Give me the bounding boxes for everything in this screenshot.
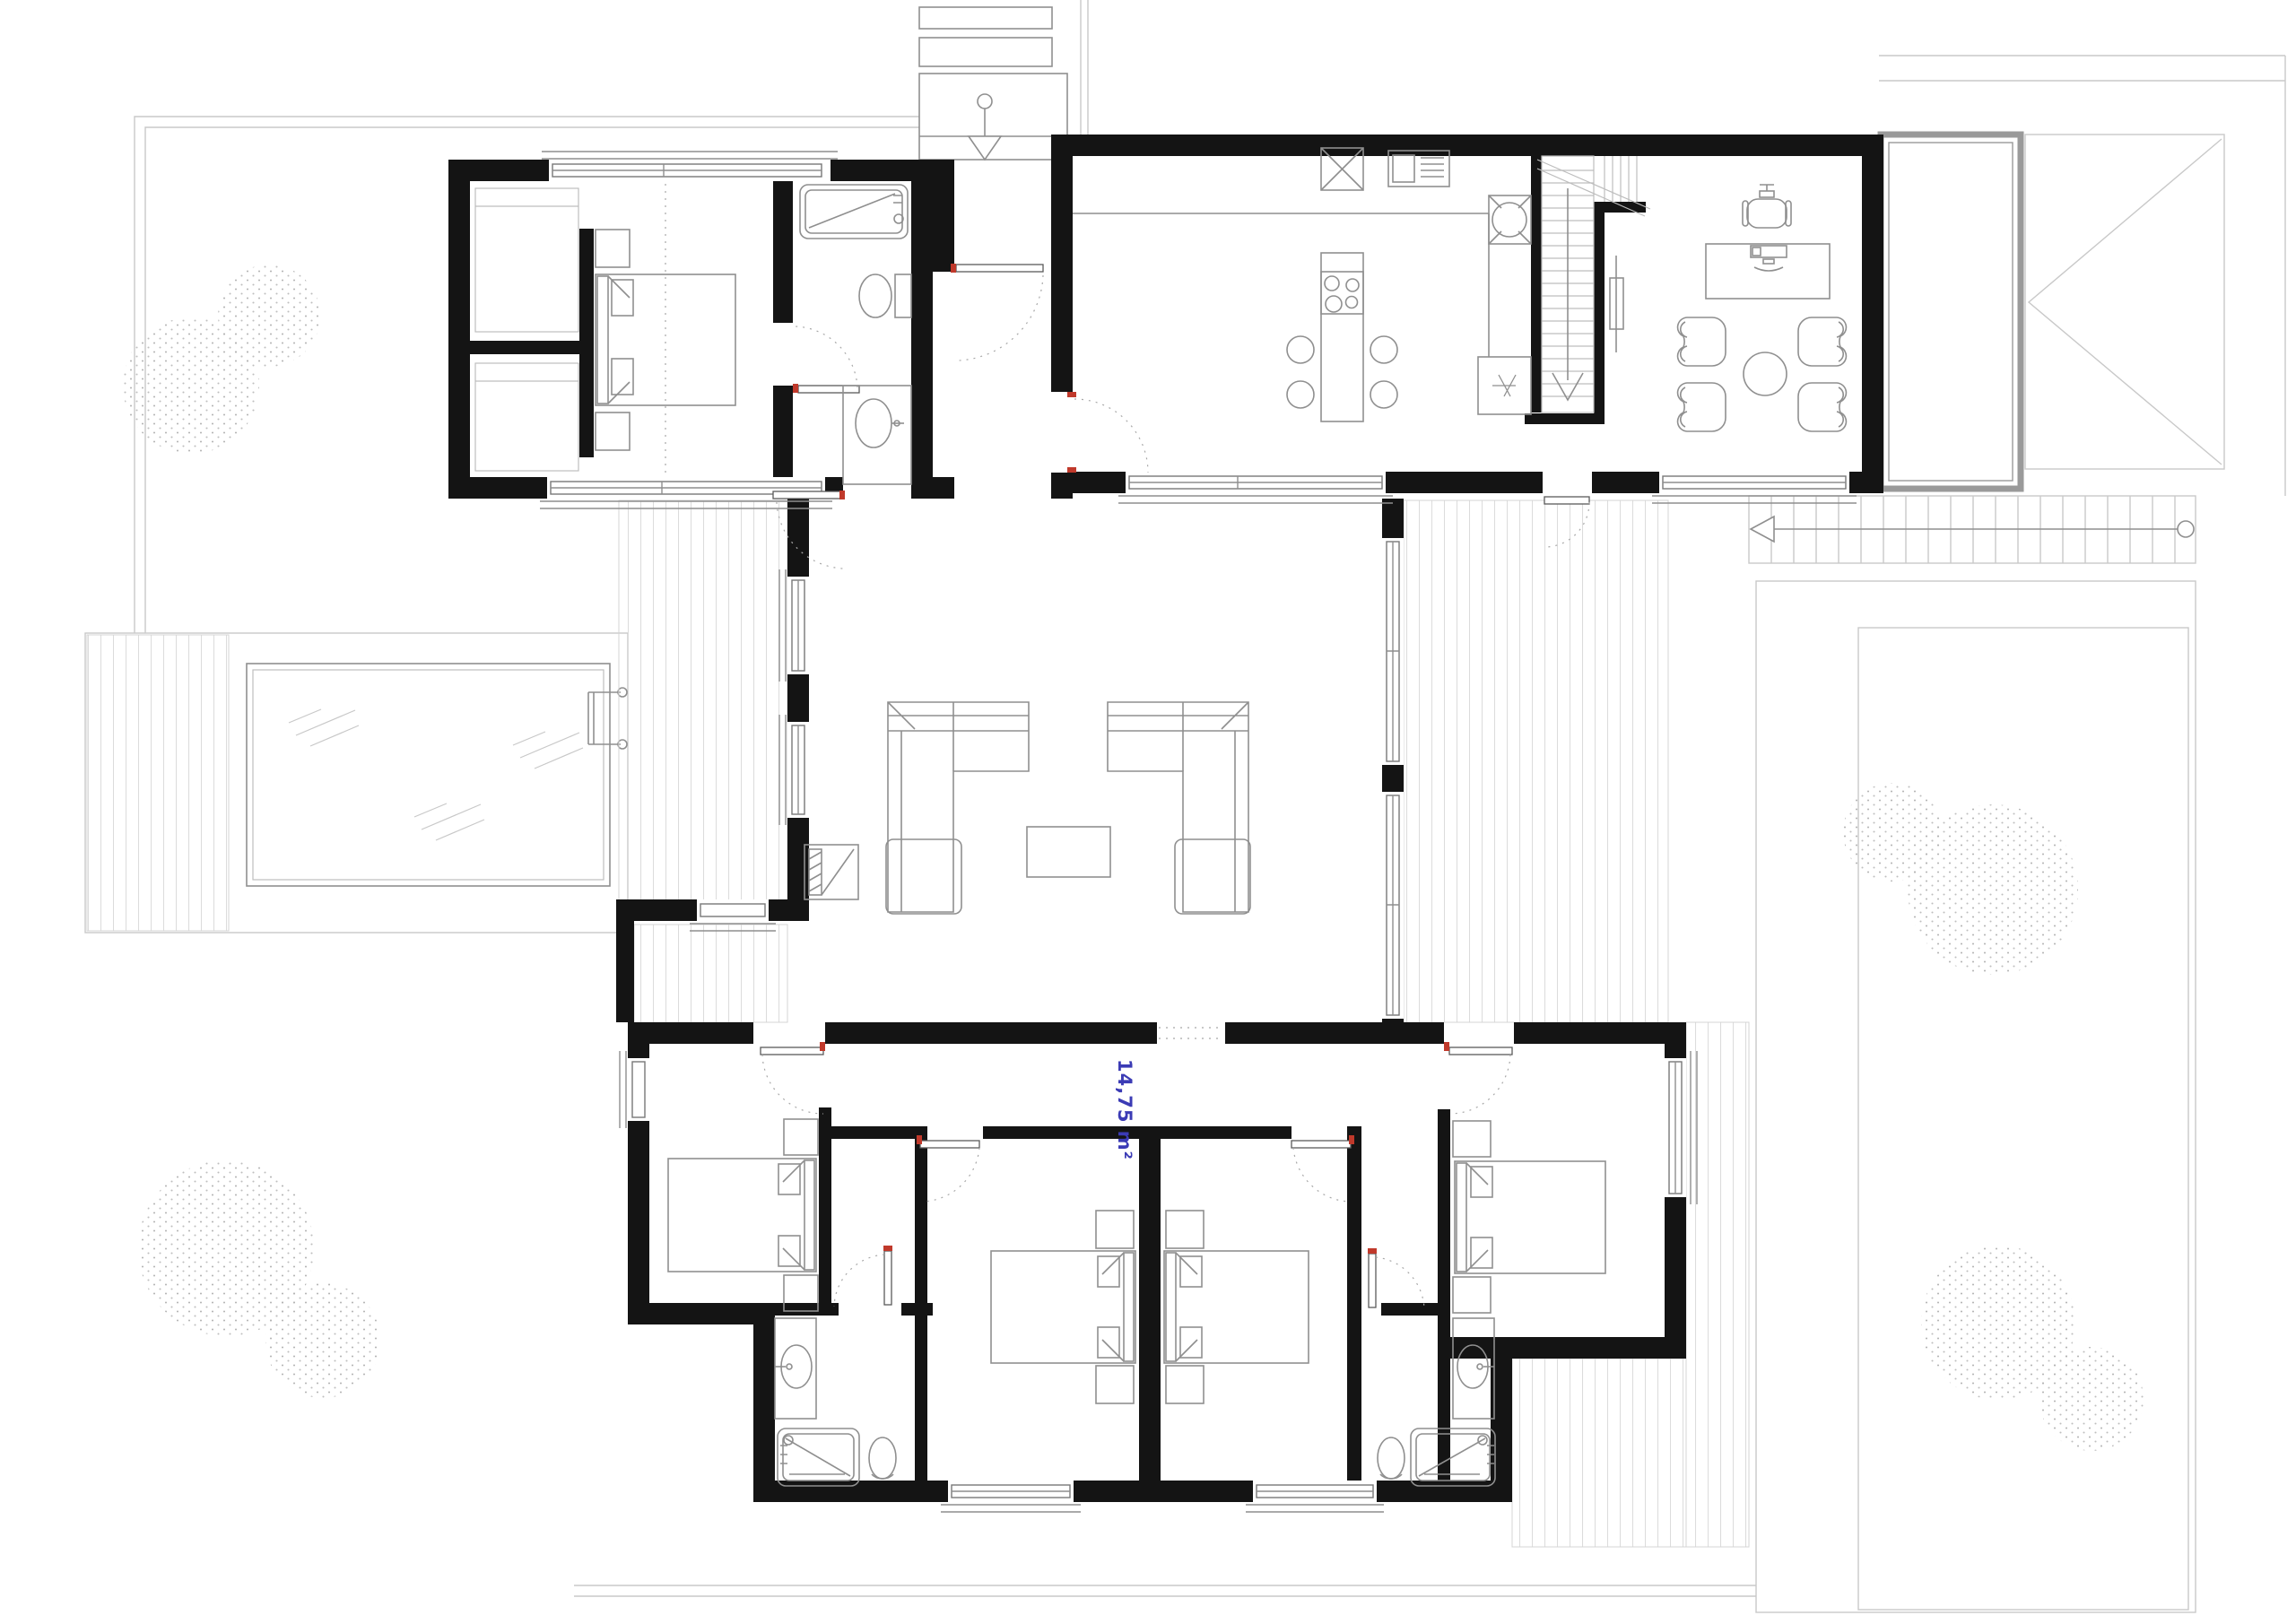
swimming-pool-icon — [247, 664, 610, 886]
toilet-icon — [869, 1437, 896, 1479]
double-bed-icon — [668, 1159, 816, 1272]
washbasin-icon — [775, 1318, 816, 1419]
bar-stool-icon — [1370, 381, 1397, 408]
nightstand-icon — [1096, 1366, 1134, 1403]
window-bedroom-midleft-south — [941, 1481, 1081, 1512]
fireplace-icon — [804, 845, 858, 899]
staircase — [1537, 156, 1650, 413]
corner-sofa-icon — [1108, 702, 1250, 914]
monitor-icon — [1751, 246, 1787, 271]
nightstand-icon — [1166, 1211, 1204, 1248]
bar-stool-icon — [1287, 381, 1314, 408]
deck-southeast — [1512, 1359, 1686, 1547]
office-chair-icon — [1743, 185, 1791, 228]
kitchen-wing-walls — [1051, 135, 1883, 493]
nightstand-icon — [596, 413, 630, 450]
double-bed-icon — [1164, 1251, 1309, 1363]
entry-corridor-walls — [933, 135, 1073, 499]
walkway — [1749, 496, 2196, 563]
dining-office-furniture — [1678, 185, 1847, 431]
living-room-furniture — [804, 702, 1250, 914]
window-master-north — [542, 152, 838, 181]
armchair-icon — [1798, 317, 1846, 366]
master-bathroom-fixtures — [800, 185, 911, 484]
window-bedroom-west — [620, 1051, 649, 1128]
nightstand-icon — [596, 230, 630, 267]
nightstand-icon — [1166, 1366, 1204, 1403]
tree-icon — [1908, 804, 2078, 975]
double-bed-icon — [1455, 1161, 1605, 1273]
window-kitchen-south — [1118, 472, 1393, 503]
door-bedroom-east — [1444, 1042, 1512, 1114]
sideboard-icon — [1610, 256, 1623, 352]
deck-east — [1404, 500, 1668, 1022]
passage-living-hall — [1159, 1028, 1223, 1038]
door-master-bathroom — [793, 326, 859, 393]
window-bedroom-midright-south — [1246, 1481, 1384, 1512]
entry-steps — [919, 7, 1067, 160]
glazed-screen-icon — [1881, 135, 2021, 489]
bar-stool-icon — [1287, 336, 1314, 363]
appliance-star-icon — [1478, 357, 1531, 414]
bedroom-midleft-furniture — [991, 1211, 1135, 1403]
tree-icon — [123, 317, 259, 454]
toilet-icon — [859, 274, 911, 317]
tree-icon — [2039, 1347, 2144, 1451]
carport — [2025, 135, 2224, 469]
nightstand-icon — [1453, 1277, 1491, 1313]
door-bathroom-west — [834, 1246, 892, 1307]
tree-icon — [265, 1283, 380, 1398]
hall-area-label: 14,75 m² — [1114, 1059, 1135, 1160]
nightstand-icon — [1096, 1211, 1134, 1248]
armchair-icon — [1798, 383, 1846, 431]
toilet-icon — [1378, 1437, 1405, 1479]
kitchen-furniture — [1073, 148, 1531, 421]
master-wing-walls — [448, 160, 933, 499]
floor-plan-canvas: 14,75 m² — [0, 0, 2296, 1624]
deck-east-strip — [1686, 1022, 1749, 1547]
nightstand-icon — [784, 1119, 818, 1155]
corner-sofa-icon — [886, 702, 1029, 914]
bedroom-midright-furniture — [1164, 1211, 1309, 1403]
door-bedroom-midright — [1291, 1135, 1354, 1202]
bathtub-icon — [1411, 1429, 1495, 1486]
coffee-table-icon — [1027, 827, 1110, 877]
bathroom-west-fixtures — [775, 1318, 896, 1486]
deck-west — [619, 500, 787, 901]
deck-pool — [87, 635, 229, 931]
armchair-icon — [1678, 317, 1726, 366]
bar-stool-icon — [1370, 336, 1397, 363]
walkway-arrow-icon — [1751, 517, 2194, 542]
door-bedroom-west — [761, 1042, 825, 1114]
bathtub-icon — [800, 185, 908, 239]
nightstand-icon — [1453, 1121, 1491, 1157]
wardrobe-icon — [475, 188, 578, 471]
round-table-icon — [1744, 352, 1787, 395]
bedroom-west-furniture — [668, 1119, 818, 1311]
pool-terrace — [85, 633, 628, 933]
deck-west-lower — [634, 925, 787, 1022]
bedroom-east-furniture — [1453, 1121, 1605, 1313]
door-corridor-kitchen — [1067, 392, 1148, 473]
corner-sink-icon — [1489, 195, 1531, 244]
master-bedroom-furniture — [475, 184, 735, 475]
door-bathroom-east — [1368, 1248, 1424, 1309]
front-door — [951, 264, 1043, 360]
bathtub-icon — [778, 1429, 859, 1486]
island-cooktop-icon — [1321, 253, 1363, 421]
window-dining-south — [1652, 472, 1857, 503]
double-bed-icon — [991, 1251, 1135, 1363]
armchair-icon — [1678, 383, 1726, 431]
washbasin-icon — [843, 386, 911, 484]
washbasin-icon — [1453, 1318, 1494, 1419]
